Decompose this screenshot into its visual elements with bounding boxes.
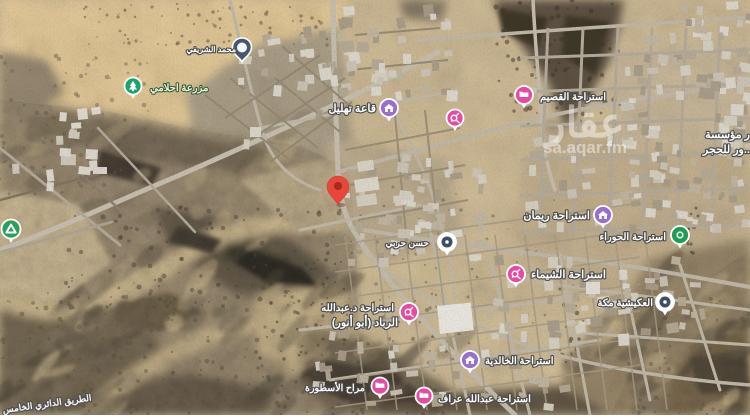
- svg-text:الرباد (أبو أنور): الرباد (أبو أنور): [332, 315, 398, 329]
- svg-text:ر مؤسسة: ر مؤسسة: [705, 129, 750, 141]
- svg-text:قاعة تهليل: قاعة تهليل: [328, 103, 376, 115]
- svg-text:استراحة عبدالله عراف: استراحة عبدالله عراف: [438, 394, 531, 405]
- svg-text:مزرعة احلامي: مزرعة احلامي: [150, 83, 208, 94]
- svg-text:ور للحجر..: ور للحجر..: [702, 144, 750, 156]
- svg-text:استراحة الخالدية: استراحة الخالدية: [485, 356, 554, 367]
- svg-text:استراحة الحوراء: استراحة الحوراء: [599, 232, 666, 243]
- svg-text:محمد الشريفي: محمد الشريفي: [186, 45, 236, 55]
- svg-text:استراحة ريمان: استراحة ريمان: [523, 210, 590, 222]
- svg-text:sa.aqar.fm: sa.aqar.fm: [543, 138, 627, 157]
- svg-text:استراحة د.عبدالله: استراحة د.عبدالله: [321, 303, 394, 314]
- svg-text:حسن حربي: حسن حربي: [386, 238, 430, 249]
- svg-text:مراح الأسطورة: مراح الأسطورة: [305, 382, 365, 394]
- svg-text:العكيشية مكة: العكيشية مكة: [597, 298, 653, 309]
- svg-text:استراحة الشيماء: استراحة الشيماء: [531, 269, 606, 281]
